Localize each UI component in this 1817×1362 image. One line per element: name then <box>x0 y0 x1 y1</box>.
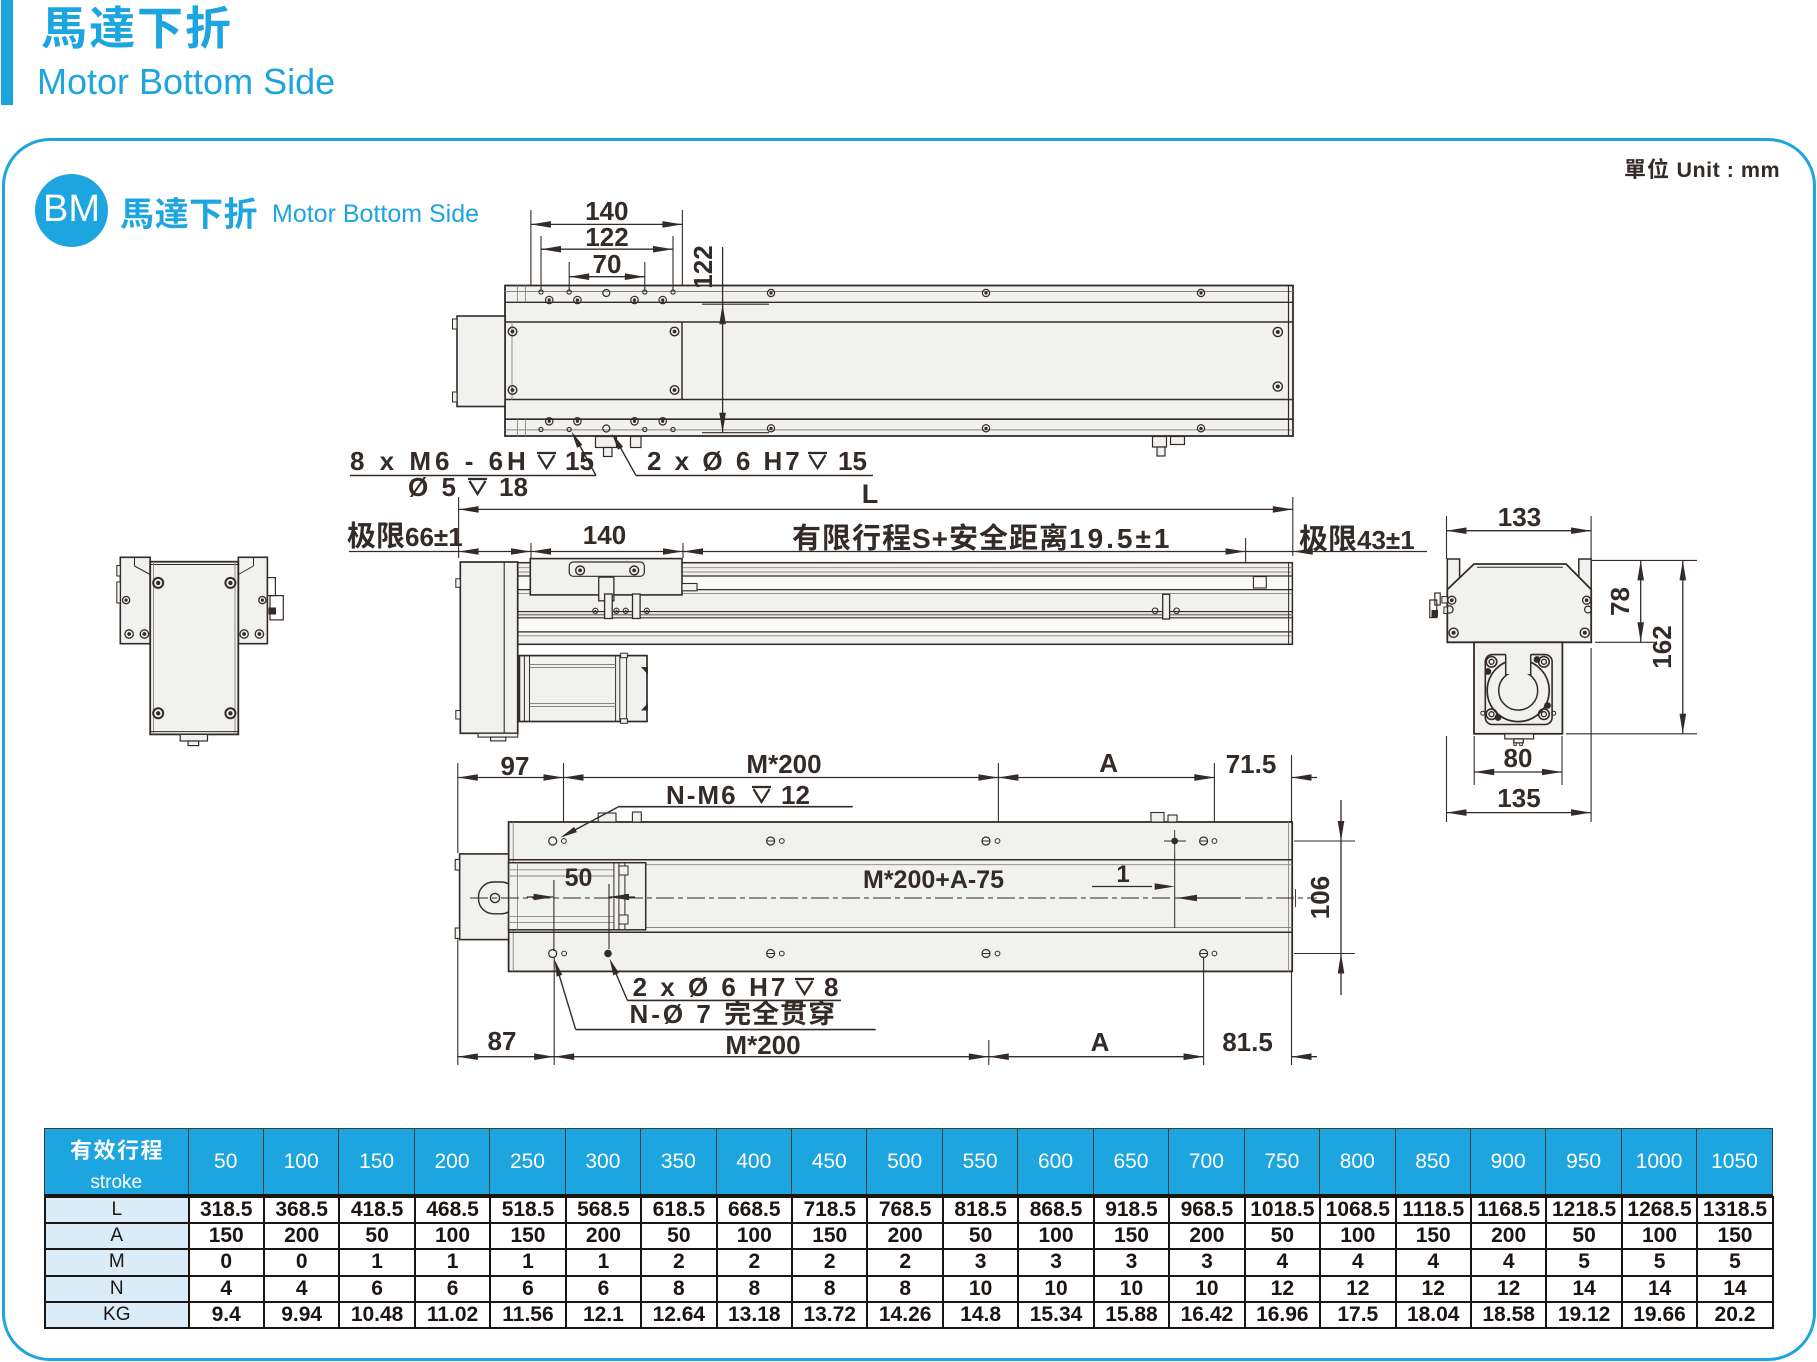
svg-text:A: A <box>1091 1027 1110 1057</box>
svg-text:50: 50 <box>565 864 593 892</box>
svg-text:Ø 5: Ø 5 <box>408 472 459 502</box>
svg-text:Unit : mm: Unit : mm <box>1677 158 1781 182</box>
svg-text:L: L <box>862 479 879 509</box>
svg-text:66±1: 66±1 <box>405 522 463 552</box>
svg-text:122: 122 <box>688 245 718 288</box>
svg-text:15: 15 <box>565 446 594 476</box>
svg-text:135: 135 <box>1497 783 1540 813</box>
svg-text:162: 162 <box>1647 625 1677 668</box>
svg-text:81.5: 81.5 <box>1222 1027 1273 1057</box>
svg-text:N-M6: N-M6 <box>666 780 738 810</box>
svg-text:80: 80 <box>1504 743 1533 773</box>
svg-text:18: 18 <box>499 472 528 502</box>
svg-text:71.5: 71.5 <box>1226 749 1277 779</box>
svg-text:M*200: M*200 <box>746 749 821 779</box>
svg-text:2 x Ø 6 H7: 2 x Ø 6 H7 <box>647 446 803 476</box>
svg-text:2 x Ø 6 H7: 2 x Ø 6 H7 <box>633 972 789 1002</box>
svg-text:1: 1 <box>1116 861 1129 888</box>
svg-text:133: 133 <box>1498 502 1541 532</box>
svg-text:N-Ø 7: N-Ø 7 <box>630 999 714 1029</box>
svg-text:70: 70 <box>593 249 622 279</box>
svg-text:19.5±1: 19.5±1 <box>1069 523 1172 554</box>
svg-text:A: A <box>1099 748 1118 778</box>
svg-text:140: 140 <box>583 520 626 550</box>
svg-text:87: 87 <box>488 1026 517 1056</box>
svg-text:122: 122 <box>585 222 628 252</box>
svg-text:S+: S+ <box>912 523 949 554</box>
svg-text:M*200: M*200 <box>725 1030 800 1060</box>
svg-text:78: 78 <box>1605 587 1635 616</box>
svg-text:97: 97 <box>501 751 530 781</box>
svg-text:15: 15 <box>838 446 867 476</box>
svg-text:M*200+A-75: M*200+A-75 <box>863 866 1004 894</box>
svg-text:106: 106 <box>1305 876 1335 919</box>
svg-text:12: 12 <box>781 780 810 810</box>
svg-text:8: 8 <box>824 972 838 1002</box>
svg-text:43±1: 43±1 <box>1357 525 1415 555</box>
